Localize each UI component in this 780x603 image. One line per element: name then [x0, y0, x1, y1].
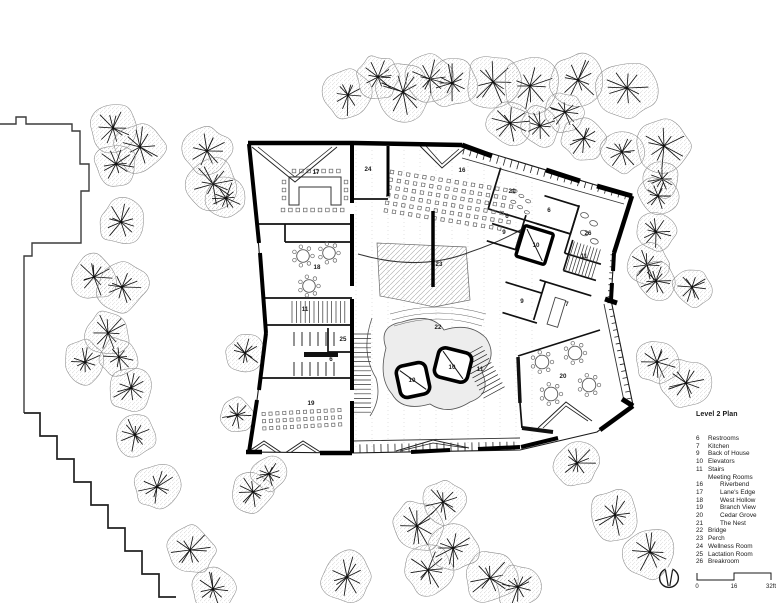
scale-label: 0: [695, 584, 699, 590]
north-arrow-icon: [656, 565, 682, 591]
legend-item-number: 25: [696, 551, 708, 559]
tree: [561, 118, 607, 160]
tree: [659, 359, 711, 407]
building-layer: 1724162166926101118239722251161010111920: [246, 143, 635, 453]
legend-item: 17Lane's Edge: [696, 489, 780, 497]
floor-plan-canvas: 1724162166926101118239722251161010111920…: [0, 0, 780, 603]
scale-label: 32ft: [766, 584, 776, 590]
room-label: 16: [459, 167, 466, 174]
room-label: 10: [533, 242, 540, 249]
legend-item: 26Breakroom: [696, 558, 780, 566]
room-label: 17: [313, 169, 320, 176]
room-label: 22: [435, 324, 442, 331]
tree: [321, 550, 372, 603]
legend-item: 23Perch: [696, 535, 780, 543]
tree: [595, 63, 658, 118]
legend-item-number: 11: [696, 466, 708, 474]
legend-item-label: Back of House: [708, 450, 780, 458]
legend-item-label: West Hollow: [708, 497, 780, 505]
legend-item-label: The Nest: [708, 520, 780, 528]
legend-item: Meeting Rooms: [696, 474, 780, 482]
tree: [220, 397, 255, 432]
legend-item: 20Cedar Grove: [696, 512, 780, 520]
legend-item-number: 7: [696, 443, 708, 451]
legend-item-number: [696, 474, 708, 482]
room-label: 11: [477, 366, 484, 373]
legend-item-number: 19: [696, 504, 708, 512]
room-label: 7: [565, 301, 569, 308]
legend-item: 18West Hollow: [696, 497, 780, 505]
legend-item: 16Riverbend: [696, 481, 780, 489]
legend-item: 24Wellness Room: [696, 543, 780, 551]
legend-item: 25Lactation Room: [696, 551, 780, 559]
tree: [672, 270, 712, 308]
tree: [167, 525, 217, 573]
tree: [638, 178, 680, 215]
scale-bar: 01632ft: [694, 567, 780, 593]
legend-item-label: Kitchen: [708, 443, 780, 451]
legend-item-number: 9: [696, 450, 708, 458]
legend-item-number: 23: [696, 535, 708, 543]
legend-item-number: 22: [696, 527, 708, 535]
scale-label: 16: [731, 584, 738, 590]
legend-item: 22Bridge: [696, 527, 780, 535]
tree: [591, 489, 637, 541]
legend-item-label: Stairs: [708, 466, 780, 474]
legend-item-number: 6: [696, 435, 708, 443]
tree: [110, 368, 151, 411]
room-label: 6: [547, 207, 551, 214]
legend-item: 9Back of House: [696, 450, 780, 458]
room-label: 6: [329, 356, 333, 363]
room-label: 10: [449, 364, 456, 371]
legend-item-label: Restrooms: [708, 435, 780, 443]
tree: [116, 415, 156, 457]
tree: [600, 132, 645, 174]
room-label: 24: [365, 166, 372, 173]
legend-item-number: 16: [696, 481, 708, 489]
legend-item-label: Elevators: [708, 458, 780, 466]
room-label: 9: [520, 298, 524, 305]
legend-item-number: 18: [696, 497, 708, 505]
legend-item-number: 10: [696, 458, 708, 466]
tree: [134, 464, 181, 509]
legend-item-number: 26: [696, 558, 708, 566]
legend-item: 19Branch View: [696, 504, 780, 512]
legend-item-label: Perch: [708, 535, 780, 543]
legend-item-number: 20: [696, 512, 708, 520]
legend-item: 21The Nest: [696, 520, 780, 528]
tree: [192, 567, 237, 603]
tree: [100, 197, 144, 243]
room-label: 6: [505, 213, 509, 220]
tree: [553, 442, 600, 486]
room-label: 18: [314, 264, 321, 271]
legend-item: 6Restrooms: [696, 435, 780, 443]
site-plan-drawing: 1724162166926101118239722251161010111920: [0, 0, 780, 603]
legend-item-label: Breakroom: [708, 558, 780, 566]
legend-item-label: Branch View: [708, 504, 780, 512]
legend-item-label: Cedar Grove: [708, 512, 780, 520]
legend-item-label: Meeting Rooms: [708, 474, 780, 482]
room-label: 11: [302, 306, 309, 313]
legend-item-number: 24: [696, 543, 708, 551]
room-label: 9: [502, 229, 506, 236]
room-label: 23: [436, 261, 443, 268]
legend-item-label: Riverbend: [708, 481, 780, 489]
legend-item: 11Stairs: [696, 466, 780, 474]
room-label: 25: [340, 336, 347, 343]
legend-panel: Level 2 Plan 6Restrooms7Kitchen9Back of …: [696, 411, 780, 566]
room-label: 10: [409, 377, 416, 384]
legend-title: Level 2 Plan: [696, 411, 780, 418]
room-label: 11: [581, 253, 588, 260]
legend-item: 7Kitchen: [696, 443, 780, 451]
legend-item-label: Wellness Room: [708, 543, 780, 551]
legend-item-label: Bridge: [708, 527, 780, 535]
legend-list: 6Restrooms7Kitchen9Back of House10Elevat…: [696, 435, 780, 566]
legend-item-number: 21: [696, 520, 708, 528]
room-label: 19: [308, 400, 315, 407]
tree: [94, 146, 135, 187]
legend-item: 10Elevators: [696, 458, 780, 466]
room-label: 20: [560, 373, 567, 380]
legend-item-number: 17: [696, 489, 708, 497]
tree: [226, 334, 264, 371]
room-label: 26: [585, 230, 592, 237]
room-label: 21: [509, 188, 516, 195]
legend-item-label: Lactation Room: [708, 551, 780, 559]
legend-item-label: Lane's Edge: [708, 489, 780, 497]
